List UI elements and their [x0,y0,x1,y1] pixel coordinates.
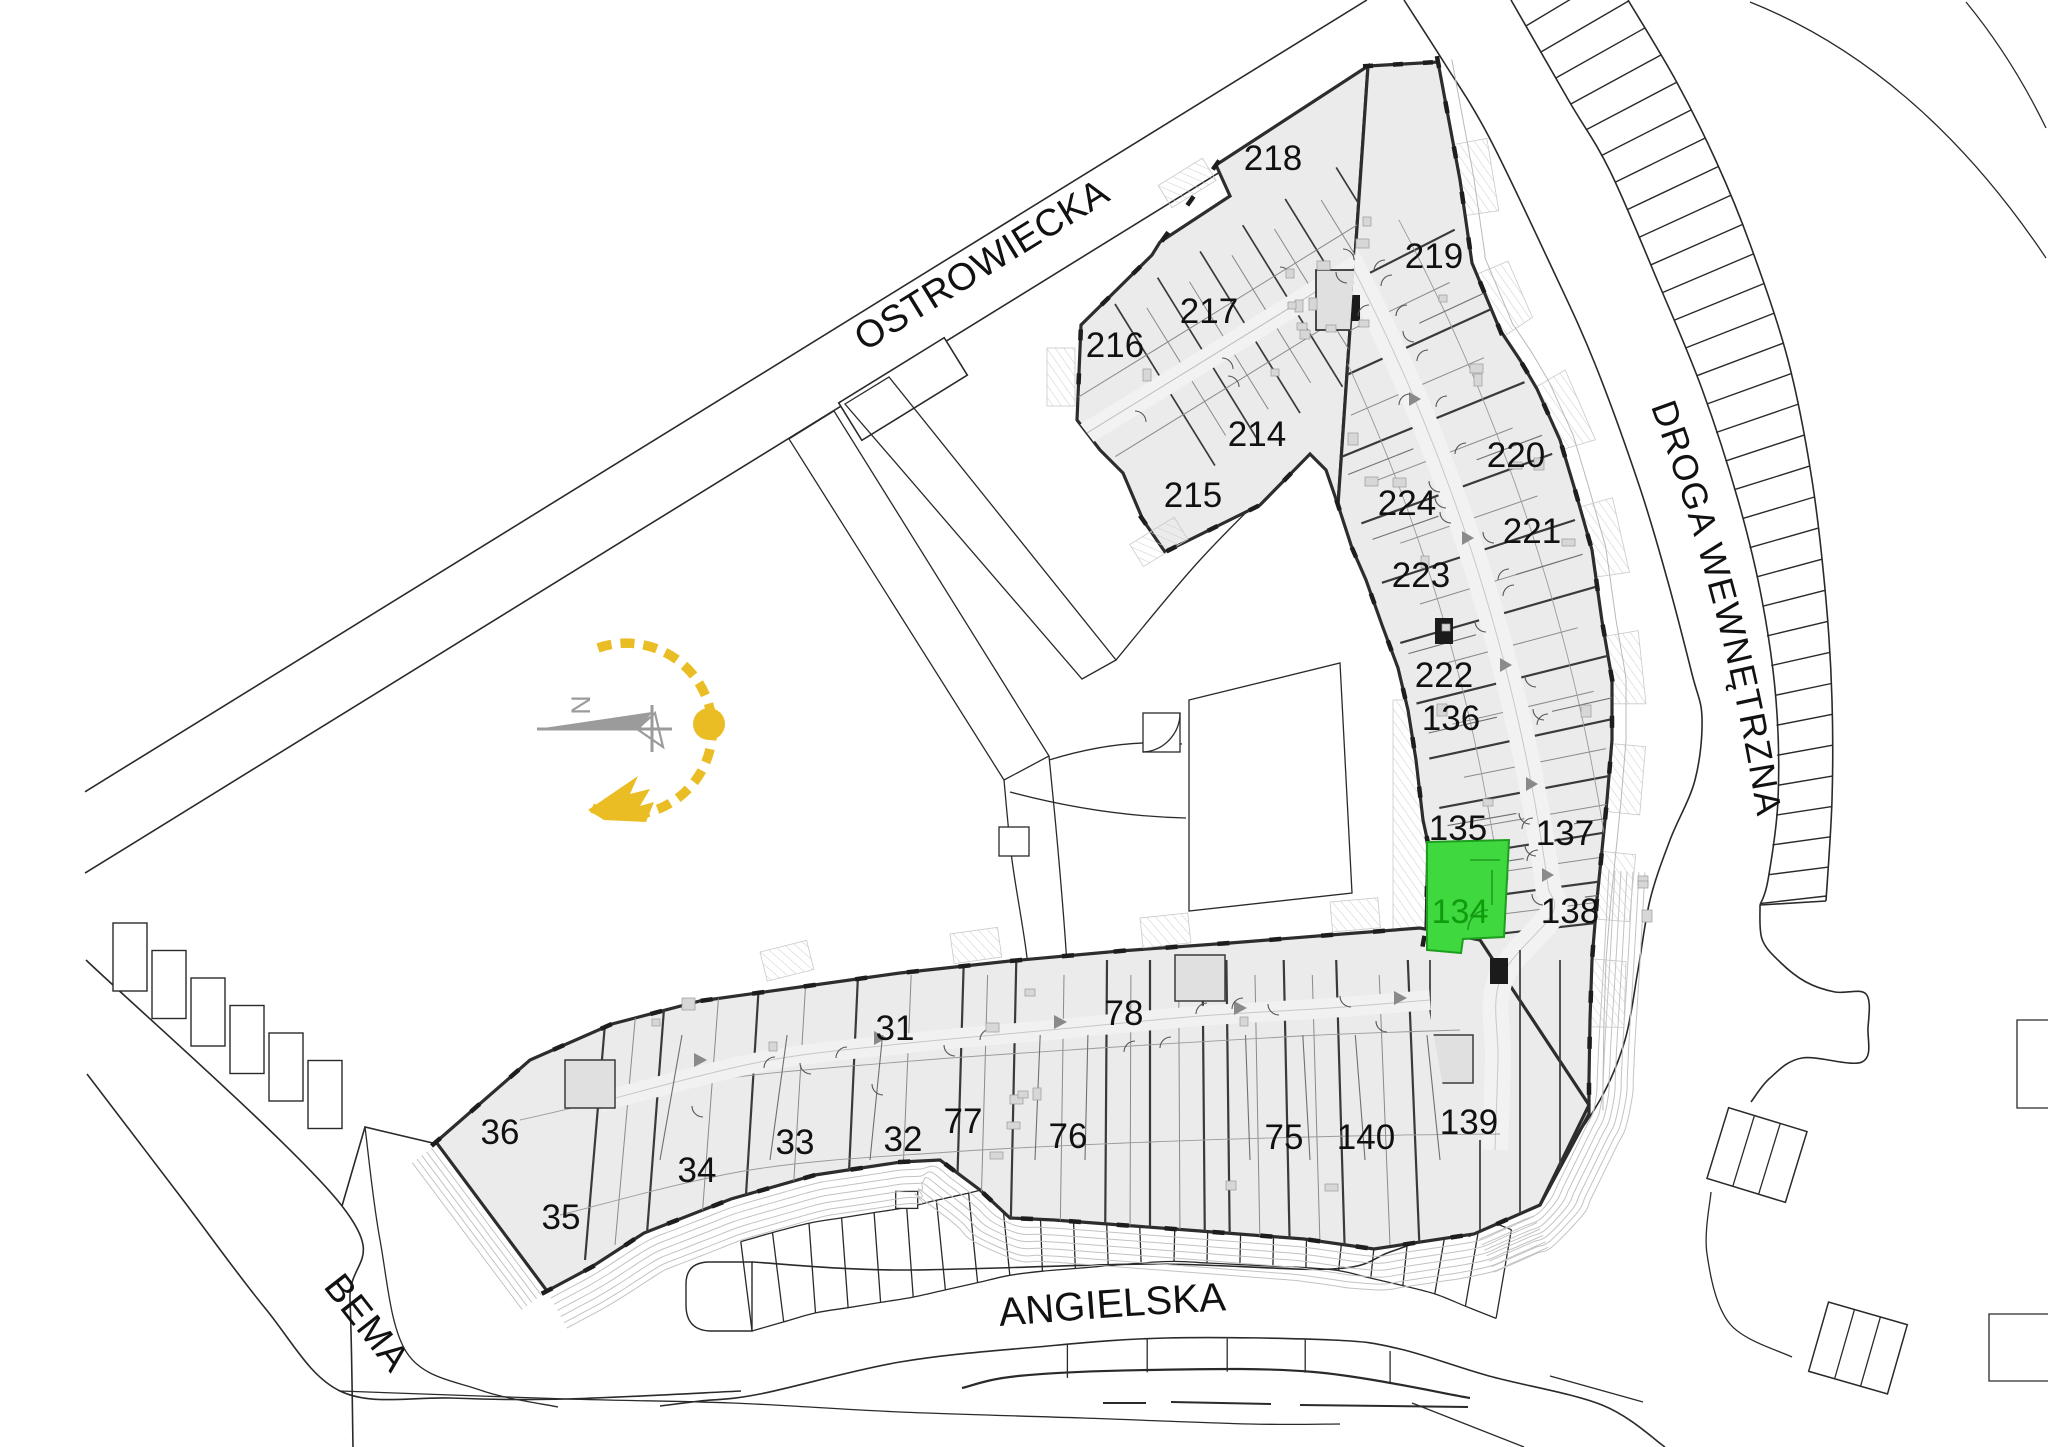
svg-text:32: 32 [884,1120,923,1159]
svg-text:138: 138 [1541,892,1599,931]
svg-text:140: 140 [1337,1118,1395,1157]
svg-text:224: 224 [1378,484,1436,523]
svg-text:216: 216 [1086,326,1144,365]
svg-text:35: 35 [542,1198,581,1237]
svg-text:222: 222 [1415,656,1473,695]
svg-text:33: 33 [776,1123,815,1162]
svg-text:136: 136 [1422,699,1480,738]
svg-text:134: 134 [1432,893,1489,931]
svg-text:214: 214 [1228,415,1286,454]
svg-text:135: 135 [1429,809,1487,848]
svg-text:77: 77 [944,1102,983,1141]
svg-text:215: 215 [1164,476,1222,515]
svg-text:221: 221 [1503,512,1561,551]
svg-text:75: 75 [1265,1118,1304,1157]
svg-text:219: 219 [1405,237,1463,276]
svg-text:220: 220 [1487,436,1545,475]
svg-text:137: 137 [1536,814,1594,853]
svg-text:36: 36 [481,1113,520,1152]
svg-text:N: N [566,695,596,715]
svg-text:139: 139 [1440,1103,1498,1142]
svg-text:31: 31 [876,1009,915,1048]
svg-text:76: 76 [1049,1117,1088,1156]
svg-text:217: 217 [1180,292,1238,331]
svg-text:78: 78 [1105,994,1144,1033]
svg-text:218: 218 [1244,139,1302,178]
svg-text:34: 34 [678,1151,717,1190]
svg-text:223: 223 [1392,556,1450,595]
